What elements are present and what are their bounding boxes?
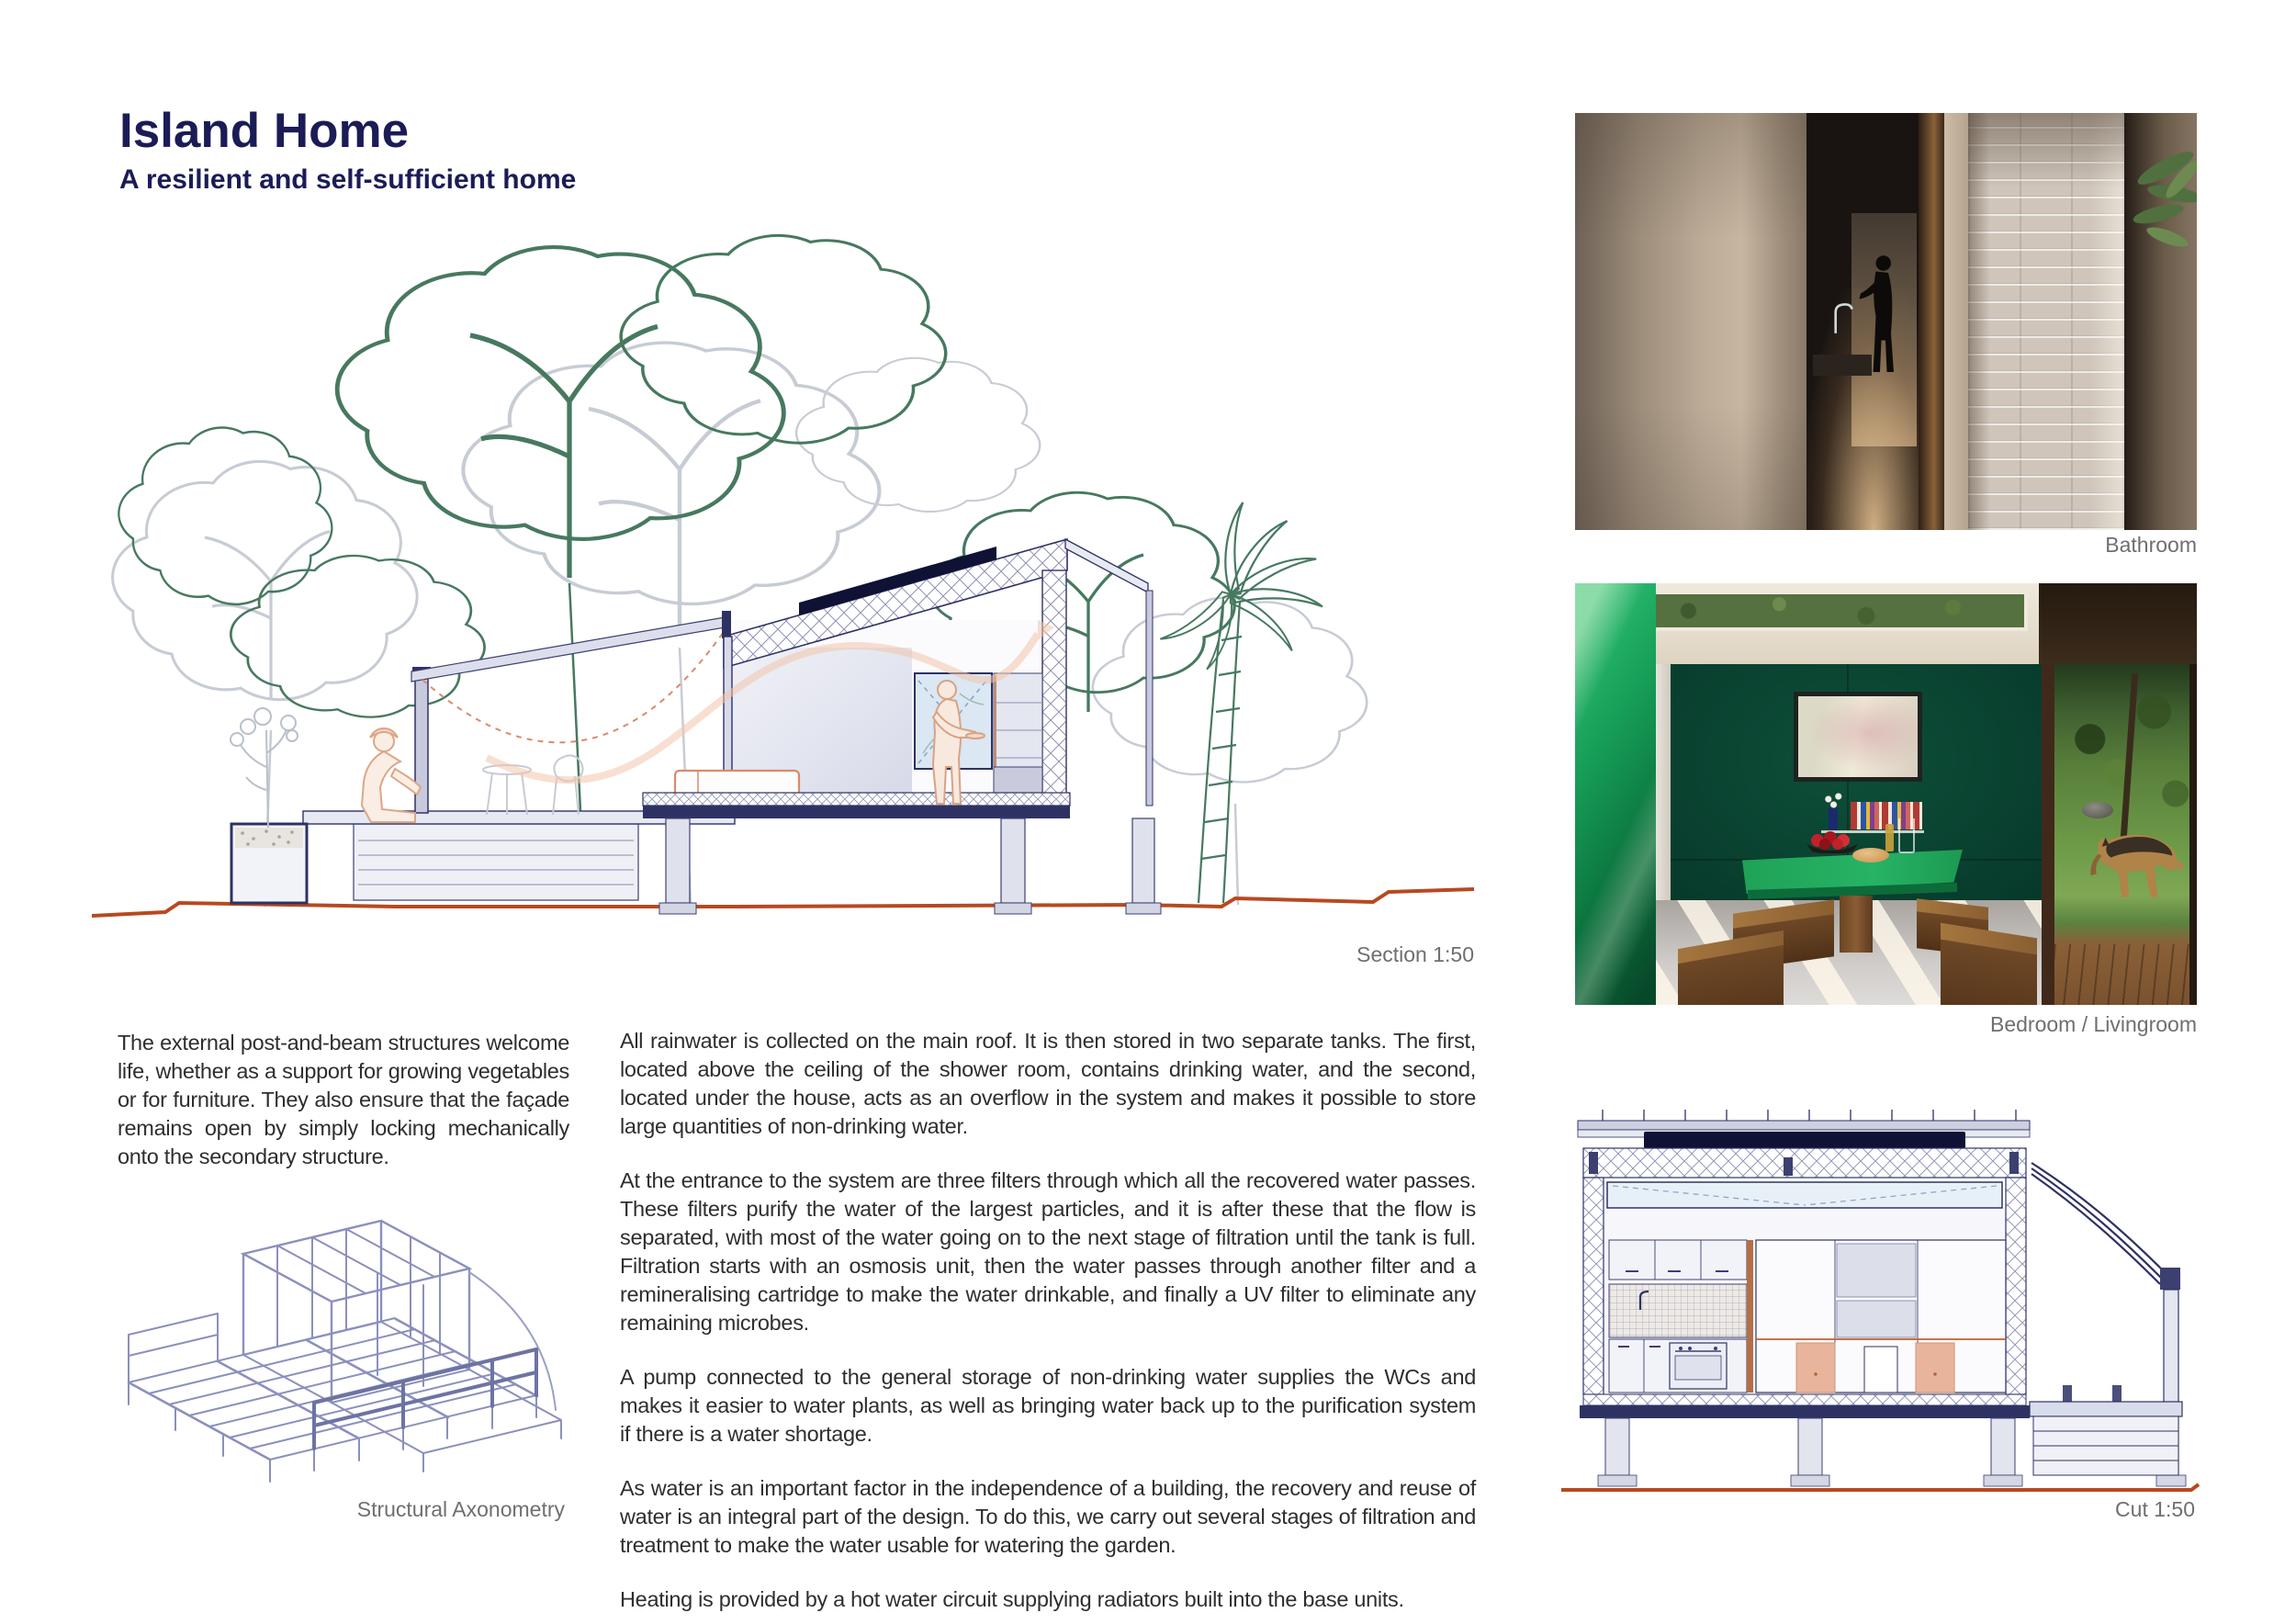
ground-line bbox=[1561, 1484, 2199, 1490]
wood-deck bbox=[2054, 944, 2197, 1005]
palm-tree bbox=[1154, 501, 1324, 903]
paragraph-pump: A pump connected to the general storage … bbox=[620, 1363, 1476, 1449]
page-subtitle: A resilient and self-sufficient home bbox=[119, 166, 576, 194]
presentation-board: Island Home A resilient and self-suffici… bbox=[0, 0, 2296, 1624]
wardrobe-elevation bbox=[1756, 1240, 2006, 1393]
oil-bottle bbox=[1885, 824, 1894, 851]
bathroom-doorway bbox=[1806, 113, 1919, 530]
paragraph-heating: Heating is provided by a hot water circu… bbox=[620, 1585, 1476, 1614]
page-title: Island Home bbox=[119, 107, 409, 155]
paragraph-filters: At the entrance to the system are three … bbox=[620, 1167, 1476, 1337]
section-drawing bbox=[92, 216, 1497, 942]
section-caption: Section 1:50 bbox=[1356, 942, 1474, 968]
axonometry-drawing bbox=[115, 1185, 574, 1493]
planter-plant-sketch bbox=[231, 708, 298, 828]
kitchen-elevation bbox=[1609, 1240, 1747, 1393]
bread bbox=[1852, 848, 1889, 863]
intro-paragraph: The external post-and-beam structures we… bbox=[118, 1029, 569, 1171]
person-gardener-sketch bbox=[362, 728, 421, 822]
dog-silhouette bbox=[2082, 811, 2190, 908]
fruit-bowl bbox=[1803, 831, 1862, 853]
bedroom-caption: Bedroom / Livingroom bbox=[1990, 1012, 2197, 1038]
porch-and-cables bbox=[2030, 1163, 2186, 1486]
glazed-brick-wall bbox=[1968, 113, 2124, 530]
bathroom-photo bbox=[1575, 113, 2197, 530]
plant-leaves bbox=[2110, 141, 2197, 297]
bright-green-wall bbox=[1575, 583, 1656, 1005]
paragraph-rainwater: All rainwater is collected on the main r… bbox=[620, 1027, 1476, 1141]
skylight-strip bbox=[1626, 591, 2028, 631]
bathroom-right-corner bbox=[2124, 113, 2197, 530]
wall-painting bbox=[1794, 692, 1922, 782]
bathroom-left-wall bbox=[1575, 113, 1806, 530]
garden-view bbox=[2054, 664, 2197, 1005]
wine-glass bbox=[1898, 818, 1915, 853]
solar-panel bbox=[1644, 1132, 1965, 1148]
cut-caption: Cut 1:50 bbox=[2115, 1497, 2195, 1523]
bedroom-photo bbox=[1575, 583, 2197, 1005]
paragraph-reuse: As water is an important factor in the i… bbox=[620, 1474, 1476, 1560]
wood-door-edge bbox=[1919, 113, 1944, 530]
bathroom-caption: Bathroom bbox=[2105, 533, 2197, 558]
axonometry-caption: Structural Axonometry bbox=[357, 1497, 565, 1523]
glass-door-frame bbox=[2042, 664, 2054, 1005]
body-text-column: All rainwater is collected on the main r… bbox=[620, 1027, 1476, 1624]
cut-drawing bbox=[1552, 1110, 2204, 1495]
person-silhouette bbox=[1845, 237, 1915, 375]
vase bbox=[1829, 807, 1838, 830]
